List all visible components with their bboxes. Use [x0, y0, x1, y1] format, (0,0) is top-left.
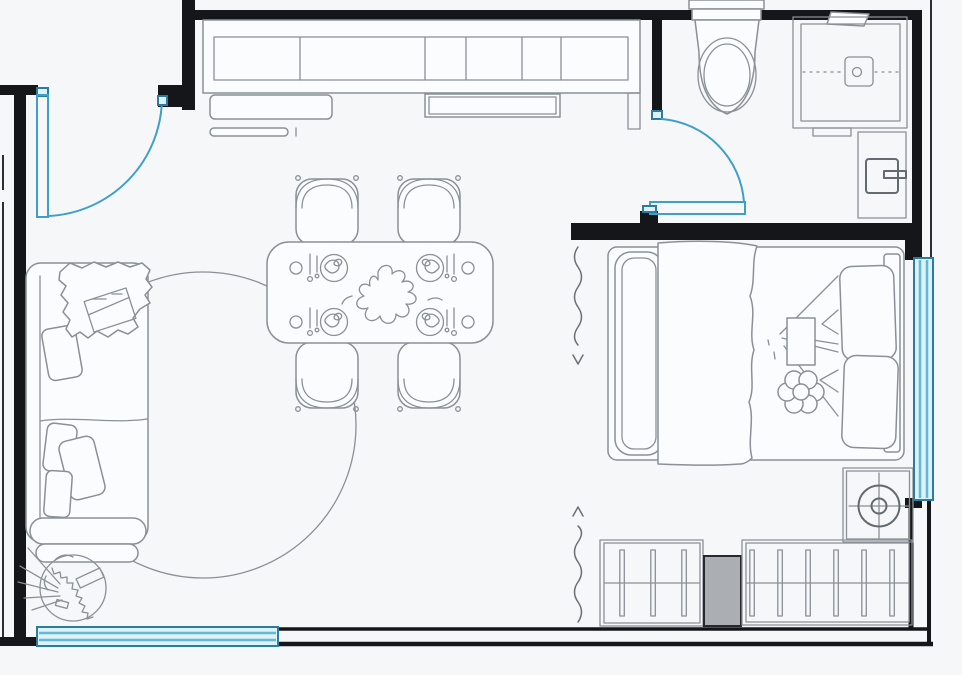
floor-plan-canvas	[0, 0, 962, 675]
pillow	[839, 265, 896, 361]
sofa-front-roll	[30, 518, 146, 544]
dining-table	[267, 242, 493, 343]
wall-bathroom-right	[912, 10, 922, 228]
floor-plan-page	[0, 0, 962, 675]
sofa-front-roll-2	[36, 544, 138, 562]
double-bed	[608, 241, 904, 465]
utility-cabinet	[704, 556, 741, 626]
dining-chair	[296, 342, 359, 411]
wall-left	[14, 95, 26, 645]
right-window	[914, 258, 933, 500]
pillow	[841, 355, 898, 449]
toilet-tank-lid	[692, 9, 761, 20]
sofa	[26, 262, 152, 562]
window-frame	[37, 627, 278, 646]
bed-tray	[787, 318, 815, 365]
wall-bathroom-left	[652, 10, 662, 118]
wall-shelf	[210, 128, 288, 136]
wall-entry-left	[0, 85, 38, 95]
wall-hall-vertical	[182, 0, 195, 110]
throw-blanket	[59, 262, 152, 338]
serving-tray	[210, 95, 332, 119]
door-jamb-accent	[643, 206, 656, 212]
dining-chair	[398, 342, 461, 411]
dining-chair	[296, 176, 359, 245]
sofa-cushion	[43, 470, 72, 518]
bed-blanket	[658, 241, 757, 465]
flower-cushion	[778, 371, 824, 413]
door-jamb-accent	[158, 96, 167, 105]
wall-bottom-left-stub	[0, 637, 40, 646]
door-jamb-accent	[652, 111, 662, 119]
dining-chair	[398, 176, 461, 245]
bottom-window	[37, 627, 278, 646]
toilet-tank	[689, 0, 764, 9]
kitchen-counter	[203, 20, 640, 93]
wall-bedroom-top	[571, 223, 922, 240]
wall-kitchen-top	[195, 10, 652, 20]
window-frame	[914, 258, 933, 500]
